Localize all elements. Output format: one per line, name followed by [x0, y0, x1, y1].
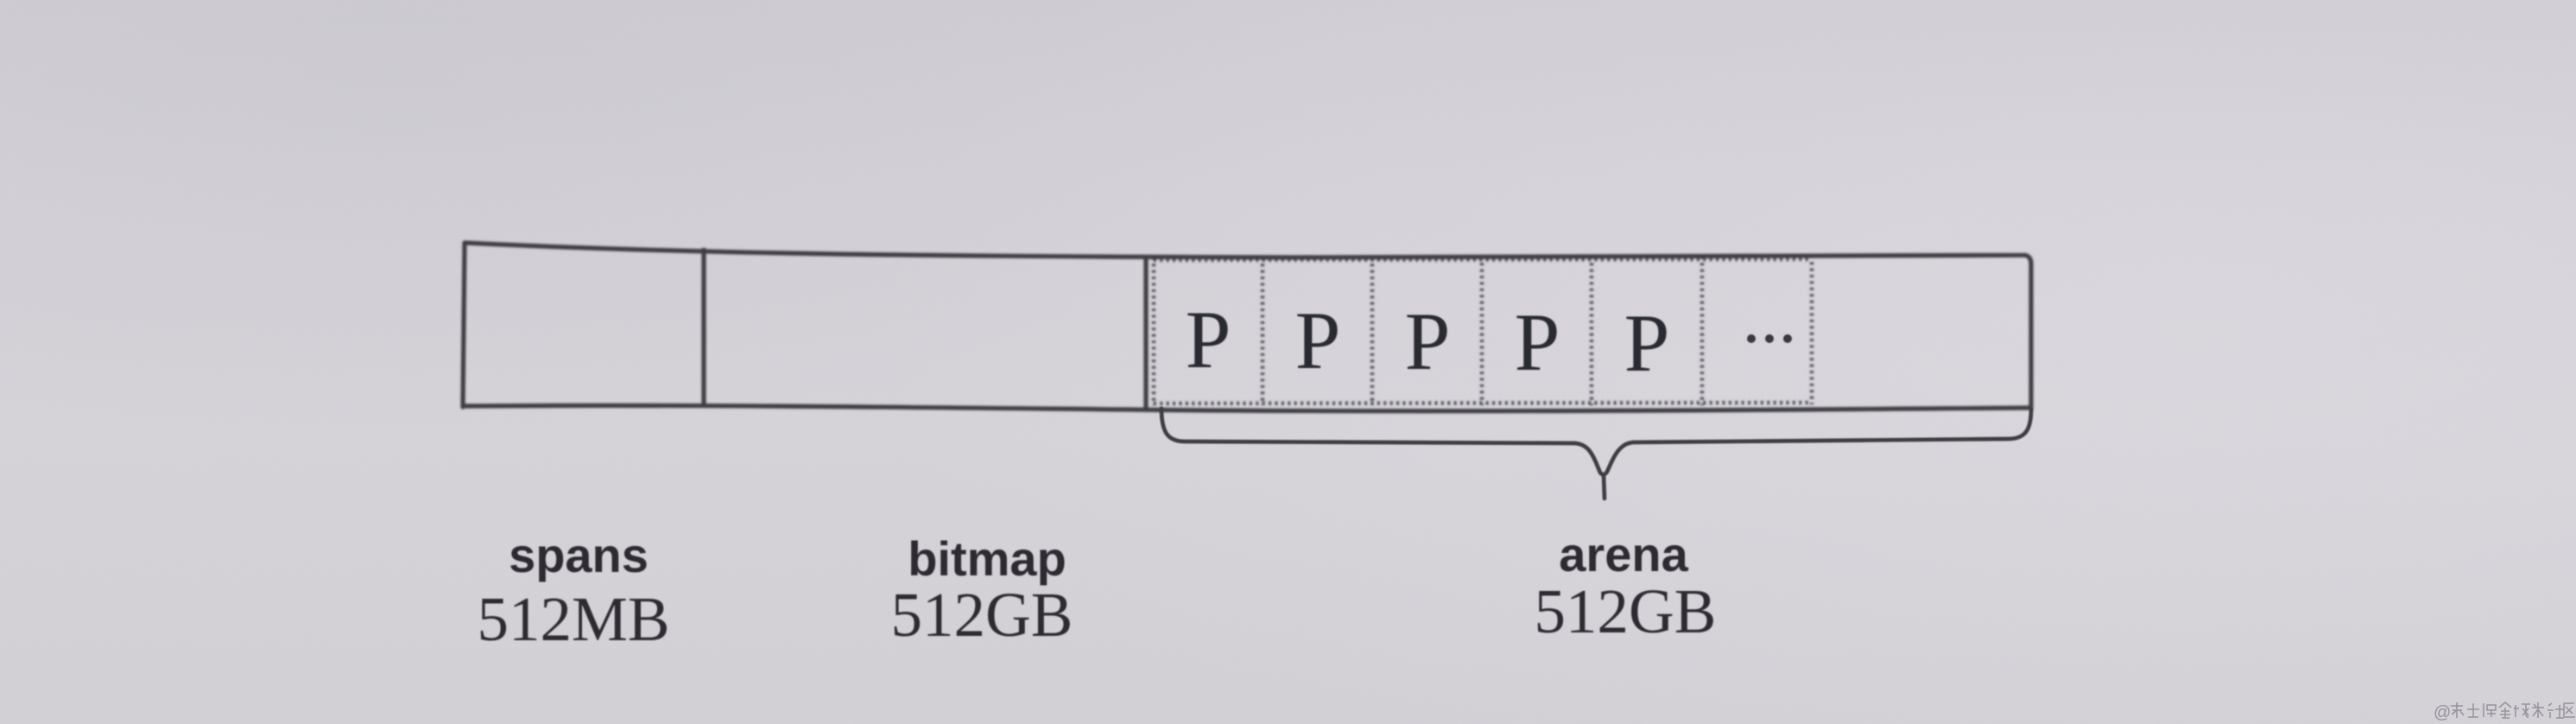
svg-text:P: P — [1405, 295, 1451, 387]
svg-text:bitmap: bitmap — [908, 531, 1066, 586]
svg-text:spans: spans — [509, 528, 649, 582]
svg-text:@: @ — [2434, 703, 2451, 722]
svg-text:P: P — [1295, 295, 1341, 386]
svg-text:P: P — [1186, 294, 1231, 385]
svg-text:P: P — [1515, 296, 1560, 388]
svg-text:512MB: 512MB — [477, 584, 669, 654]
svg-text:arena: arena — [1559, 527, 1688, 581]
svg-text:512GB: 512GB — [891, 580, 1073, 650]
svg-text:P: P — [1624, 297, 1670, 389]
svg-text:512GB: 512GB — [1535, 576, 1717, 646]
